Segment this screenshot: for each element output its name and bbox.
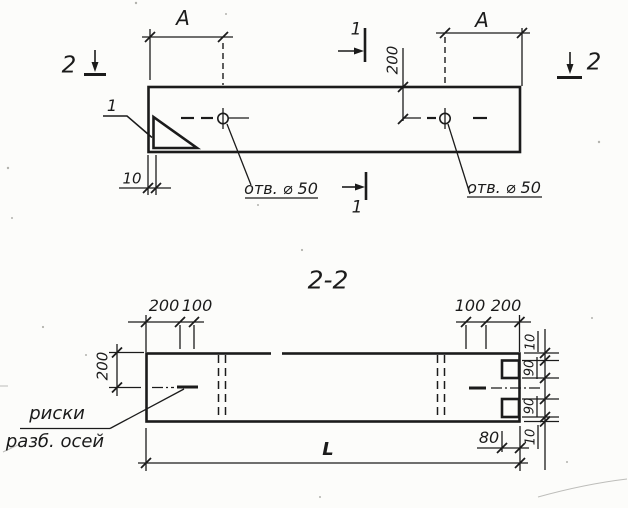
detail-callout-label: 1 <box>107 98 117 114</box>
section-marker-2-right-label: 2 <box>587 52 602 75</box>
chain-dim-90-top-label: 90 <box>524 360 537 377</box>
dim-groove-depth-label: 80 <box>479 430 499 446</box>
detail-callout-leader <box>103 116 152 138</box>
dim-axis-offset-group <box>109 344 144 396</box>
end-groove-bottom <box>502 399 519 417</box>
hole-label-right: отв. ⌀ 50 <box>467 180 541 196</box>
dim-200-plan-label: 200 <box>386 46 401 75</box>
section-joint-dashed-lines <box>219 355 445 420</box>
riska-note-line1: риски <box>29 405 85 423</box>
drawing-sheet: 2 2 A A 200 1 1 1 10 отв. ⌀ 50 отв. ⌀ 50… <box>0 0 628 508</box>
cut-marker-1-top-label: 1 <box>351 22 362 39</box>
chain-dim-90-bottom-label: 90 <box>524 398 537 415</box>
dim-a-left <box>142 29 233 85</box>
hole-right <box>403 108 487 129</box>
end-groove-top <box>502 361 519 379</box>
axis-line-riska-marks <box>152 387 540 388</box>
dim-tr-100-label: 100 <box>455 298 486 314</box>
dim-tl-100-label: 100 <box>182 298 213 314</box>
hole-label-left: отв. ⌀ 50 <box>244 181 318 197</box>
dim-tr-200-label: 200 <box>491 298 522 314</box>
dim-top-right-group <box>456 315 531 352</box>
cut-marker-2-right <box>557 52 582 78</box>
hole-left <box>181 108 249 129</box>
chain-dim-10-bottom-label: 10 <box>525 429 538 446</box>
section-beam-outline <box>147 354 520 422</box>
riska-note-line2: разб. осей <box>6 433 104 451</box>
dim-a-left-label: A <box>176 8 190 28</box>
cut-marker-1-bottom <box>342 172 366 200</box>
dim-overall-length-label: L <box>322 441 333 459</box>
section-title: 2-2 <box>308 268 349 293</box>
cut-marker-1-bottom-label: 1 <box>352 200 363 217</box>
section-marker-2-left-label: 2 <box>62 55 77 78</box>
scan-artifacts <box>0 2 627 498</box>
chain-dim-10-top-label: 10 <box>525 334 538 351</box>
dim-top-left-group <box>128 315 204 352</box>
dim-tl-200-label: 200 <box>149 298 180 314</box>
cut-marker-2-left <box>84 50 106 75</box>
dim-a-right <box>436 28 530 86</box>
dim-a-right-label: A <box>475 10 489 30</box>
plan-beam-outline <box>149 87 521 152</box>
dim-axis-offset-label: 200 <box>96 352 111 381</box>
corner-triangle-detail <box>154 117 198 148</box>
scan-gap <box>271 351 282 356</box>
dim-10-plan-label: 10 <box>122 172 141 187</box>
